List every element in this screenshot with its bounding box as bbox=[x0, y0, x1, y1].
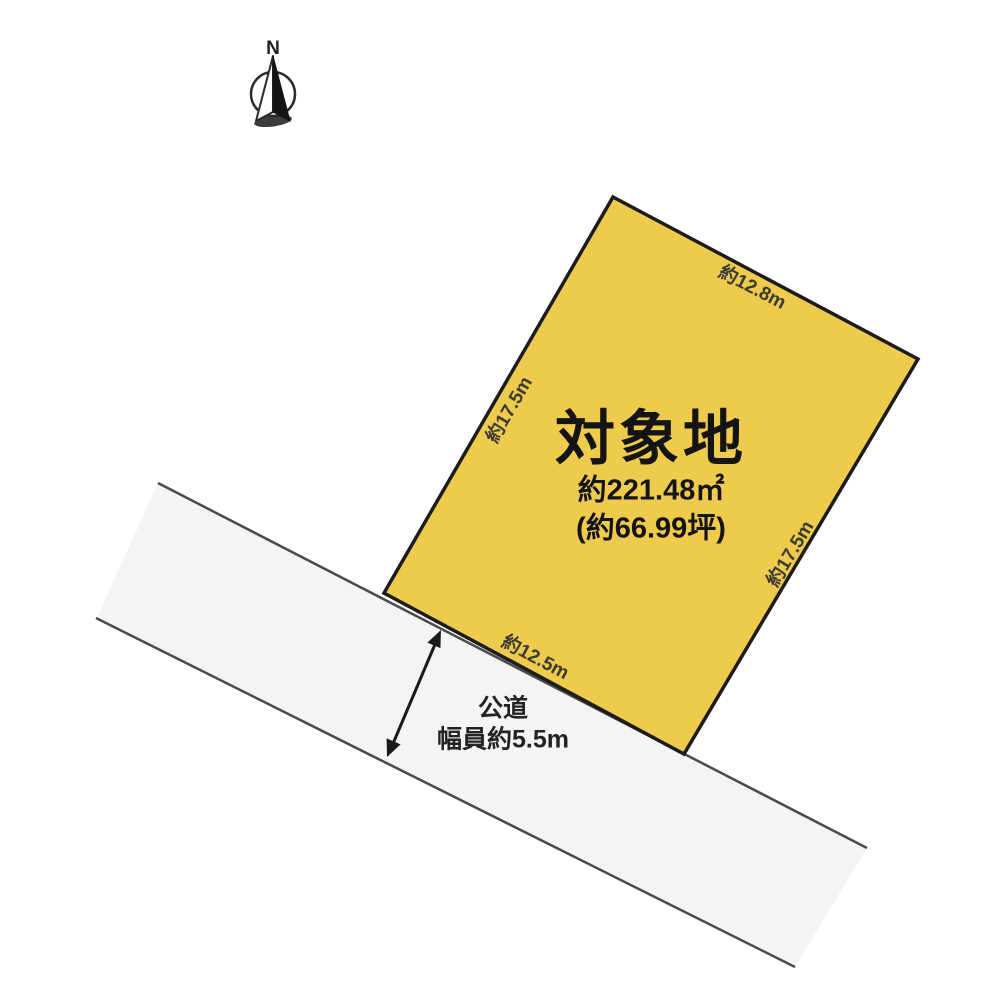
road-width-label: 幅員約5.5m bbox=[437, 724, 569, 755]
road-name: 公道 bbox=[437, 694, 569, 725]
lot-title: 対象地 bbox=[555, 408, 747, 471]
compass-needle-right bbox=[273, 56, 290, 121]
lot-area-m2: 約221.48㎡ bbox=[555, 474, 747, 509]
compass-north-label: N bbox=[266, 38, 280, 59]
compass-needle-left bbox=[256, 56, 273, 121]
lot-label-block: 対象地 約221.48㎡ (約66.99坪) bbox=[555, 408, 747, 547]
diagram-canvas: N bbox=[0, 0, 1000, 1002]
road-label-block: 公道 幅員約5.5m bbox=[437, 694, 569, 755]
site-plan-page: N 約12.8m 約17.5m 約17.5m 約12.5m 対象地 約221.4… bbox=[0, 0, 1000, 1002]
north-compass-icon: N bbox=[251, 38, 295, 129]
lot-area-tsubo: (約66.99坪) bbox=[555, 512, 747, 547]
